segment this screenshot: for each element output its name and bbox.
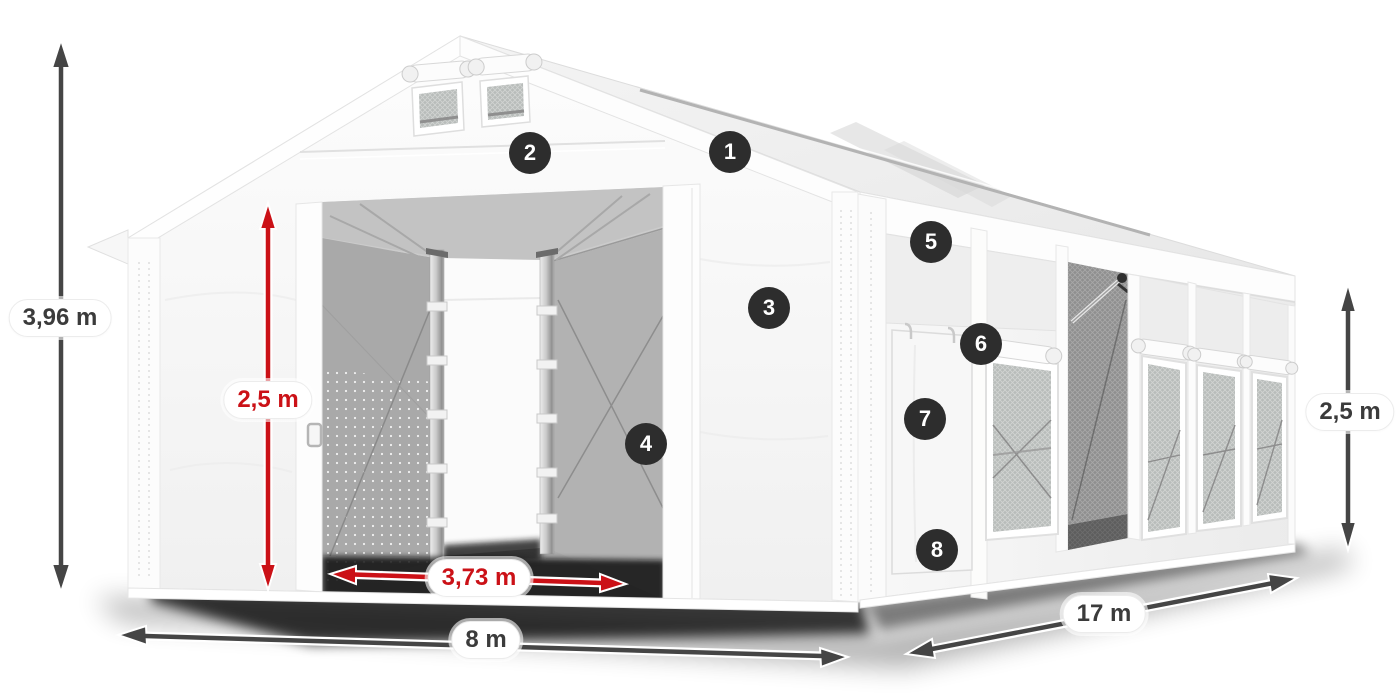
marker-8: 8 <box>916 529 958 571</box>
door-jamb-right <box>663 184 700 600</box>
door-handle <box>308 424 321 446</box>
tent-product-dimension-diagram: 3,96 m 2,5 m 3,73 m 8 m 17 m 2,5 m 1 2 3… <box>0 0 1400 700</box>
marker-4: 4 <box>625 423 667 465</box>
marker-2: 2 <box>509 132 551 174</box>
truss-joint <box>1117 273 1127 283</box>
door-height-label: 2,5 m <box>223 381 312 419</box>
marker-7: 7 <box>904 398 946 440</box>
front-width-label: 8 m <box>451 621 520 659</box>
marker-5: 5 <box>910 221 952 263</box>
marker-1: 1 <box>709 131 751 173</box>
tent-illustration <box>0 0 1400 700</box>
open-door-leaf-right <box>552 229 665 600</box>
side-open-doorway <box>1068 262 1140 550</box>
front-doorway <box>300 180 670 605</box>
marker-6: 6 <box>960 323 1002 365</box>
side-window-2 <box>1187 347 1251 531</box>
door-width-label: 3,73 m <box>428 559 531 597</box>
length-label: 17 m <box>1063 595 1146 633</box>
total-height-label: 3,96 m <box>9 299 112 337</box>
eave-overhang <box>88 230 128 264</box>
side-height-label: 2,5 m <box>1305 393 1394 431</box>
side-window-near <box>983 338 1063 540</box>
marker-3: 3 <box>748 287 790 329</box>
doorway-gap <box>443 258 541 556</box>
